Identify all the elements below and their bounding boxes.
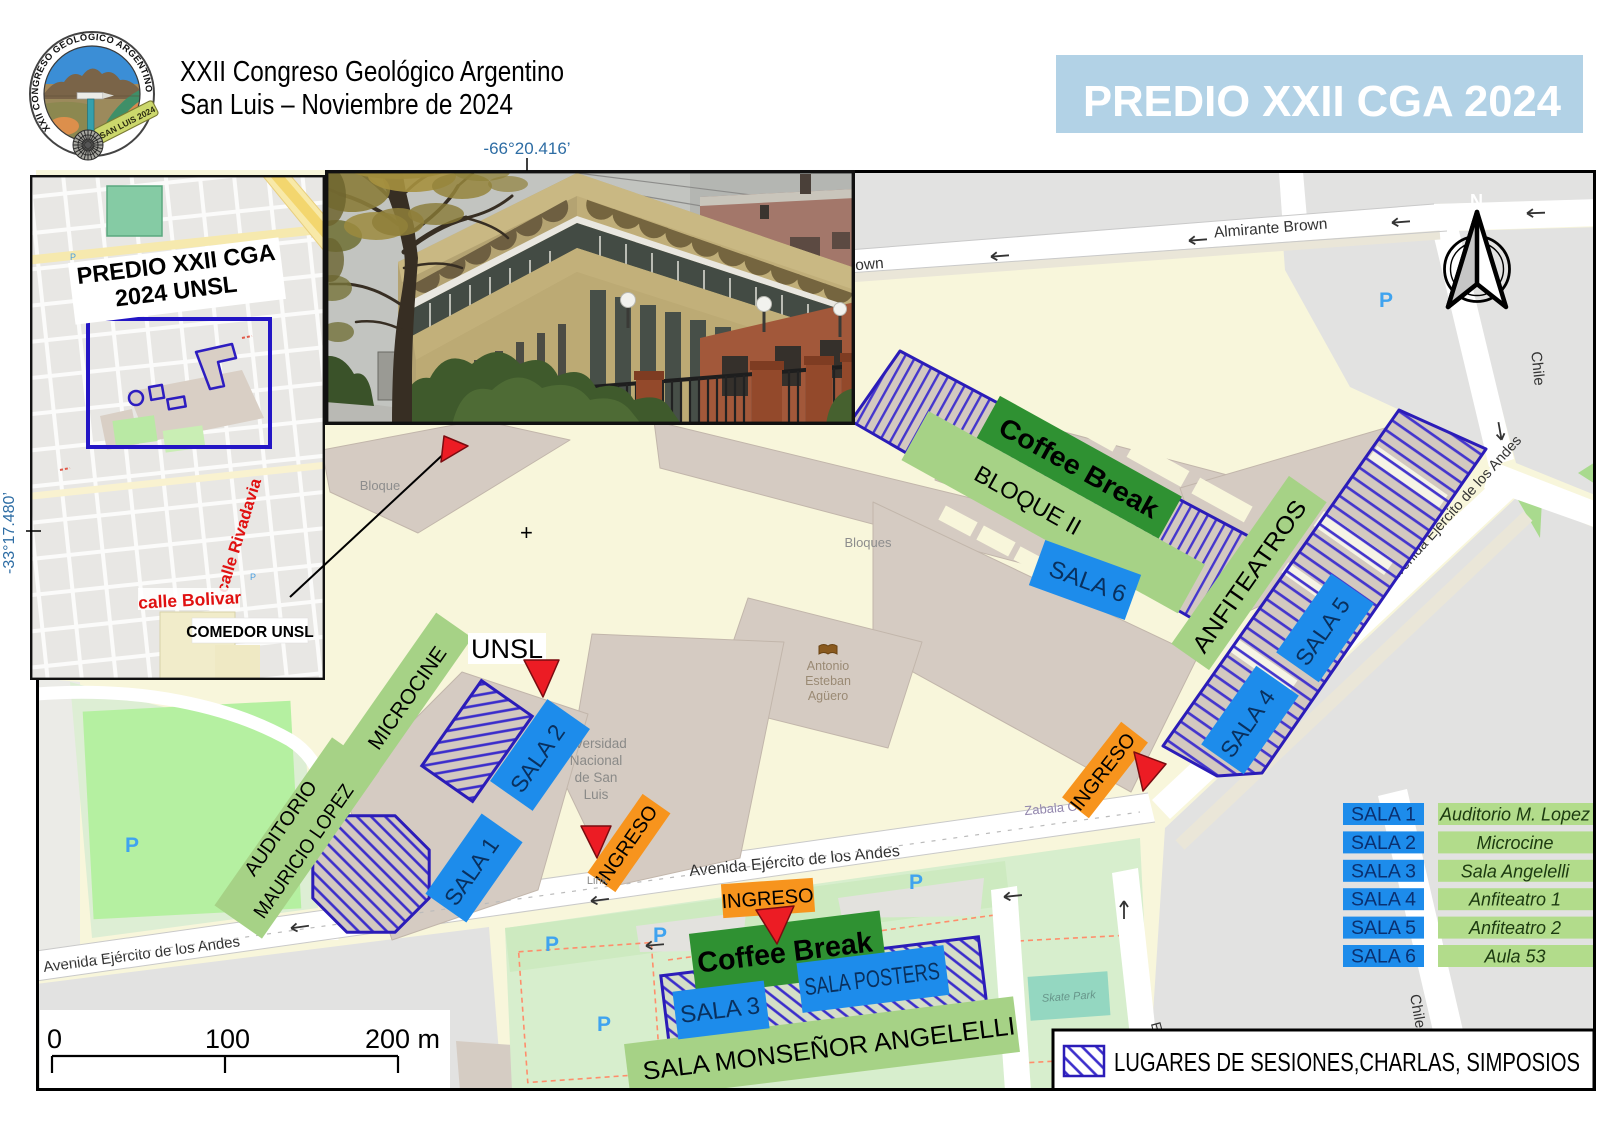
svg-text:+: + (520, 520, 533, 545)
svg-text:de San: de San (575, 770, 618, 785)
svg-text:Anfiteatro 1: Anfiteatro 1 (1468, 890, 1561, 910)
svg-text:SALA 2: SALA 2 (1351, 832, 1416, 854)
svg-text:P: P (545, 933, 559, 956)
svg-text:P: P (653, 924, 667, 947)
svg-text:Link: Link (587, 875, 608, 887)
svg-text:Bloques: Bloques (845, 535, 892, 550)
svg-text:Antonio: Antonio (807, 659, 849, 673)
svg-text:Aula 53: Aula 53 (1483, 947, 1545, 967)
svg-text:SALA 5: SALA 5 (1351, 917, 1416, 939)
svg-text:Sala Angelelli: Sala Angelelli (1461, 861, 1570, 881)
svg-text:Microcine: Microcine (1476, 833, 1553, 853)
svg-text:0: 0 (47, 1024, 62, 1054)
svg-text:Luis: Luis (584, 787, 609, 802)
svg-text:Agüero: Agüero (808, 689, 848, 703)
svg-text:100: 100 (205, 1024, 250, 1054)
svg-text:PREDIO XXII CGA 2024: PREDIO XXII CGA 2024 (1083, 77, 1562, 126)
svg-text:P: P (125, 834, 139, 857)
svg-text:XXII Congreso Geológico Argent: XXII Congreso Geológico Argentino (180, 56, 564, 88)
svg-text:P: P (70, 252, 76, 262)
svg-text:Esteban: Esteban (805, 674, 851, 688)
svg-text:N: N (1470, 191, 1483, 211)
svg-text:SALA 4: SALA 4 (1351, 889, 1416, 911)
svg-text:Anfiteatro 2: Anfiteatro 2 (1468, 918, 1561, 938)
svg-text:-33°17.480’: -33°17.480’ (1, 492, 18, 574)
svg-text:P: P (250, 572, 256, 582)
svg-text:Nacional: Nacional (570, 753, 623, 768)
svg-text:LUGARES DE SESIONES,CHARLAS, S: LUGARES DE SESIONES,CHARLAS, SIMPOSIOS (1114, 1047, 1580, 1077)
svg-text:Auditorio M. Lopez: Auditorio M. Lopez (1439, 805, 1590, 825)
svg-text:SALA 3: SALA 3 (1351, 860, 1416, 882)
svg-text:-66°20.416’: -66°20.416’ (483, 139, 570, 158)
svg-text:P: P (1379, 289, 1393, 312)
svg-text:SALA 1: SALA 1 (1351, 804, 1416, 826)
svg-text:Chile: Chile (1527, 351, 1547, 387)
svg-text:P: P (909, 871, 923, 894)
svg-text:SALA 6: SALA 6 (1351, 946, 1416, 968)
svg-text:COMEDOR UNSL: COMEDOR UNSL (186, 624, 313, 641)
svg-text:Bloque: Bloque (360, 478, 400, 493)
svg-text:San Luis – Noviembre de 2024: San Luis – Noviembre de 2024 (180, 89, 513, 121)
svg-text:P: P (597, 1013, 611, 1036)
svg-text:200 m: 200 m (365, 1024, 440, 1054)
